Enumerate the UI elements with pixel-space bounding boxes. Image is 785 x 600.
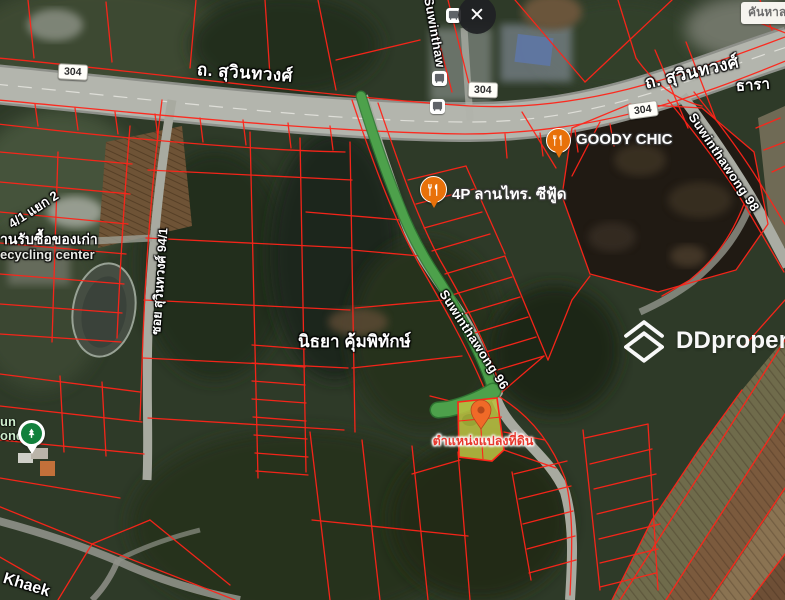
poi-marker-lan-sai[interactable]: 4P ลานไทร. ซีฟู้ด	[420, 176, 447, 208]
marker-tail	[27, 446, 37, 454]
plot-position-label: ตำแหน่งแปลงที่ดิน	[431, 431, 535, 451]
poi-label-lan-sai: 4P ลานไทร. ซีฟู้ด	[452, 182, 566, 206]
place-label-park-fragment-1: un	[0, 414, 16, 429]
marker-tail	[430, 201, 438, 208]
marker-tail	[555, 151, 563, 158]
place-chip-khan-han: คันหาล	[741, 2, 785, 24]
ddproperty-watermark: DDproperty	[620, 315, 785, 367]
restaurant-icon	[546, 128, 571, 153]
place-label-recycling-center: ecycling center	[0, 247, 95, 262]
route-highlight	[361, 96, 493, 410]
tree-icon	[21, 423, 42, 444]
map-canvas[interactable]: ถ. สุวินทวงศ์ ถ. สุวินทวงศ์ Suwinthaw ซอ…	[0, 0, 785, 600]
close-icon: ✕	[469, 4, 485, 27]
route-shield-304-center: 304	[468, 81, 498, 98]
restaurant-icon	[420, 176, 447, 203]
poi-marker-goody-chic[interactable]: GOODY CHIC	[546, 128, 571, 158]
ddproperty-watermark-text: DDproperty	[676, 327, 785, 355]
bus-stop-icon[interactable]	[432, 71, 447, 86]
poi-label-goody-chic: GOODY CHIC	[576, 131, 672, 148]
ddproperty-logo-icon	[620, 315, 668, 367]
place-label-nithaya: นิธยา คุ้มพิทักษ์	[298, 328, 411, 355]
bus-stop-icon[interactable]	[430, 99, 445, 114]
poi-marker-park[interactable]	[18, 420, 45, 454]
place-label-thara: ธารา	[735, 72, 771, 98]
route-shield-304-west: 304	[58, 63, 88, 81]
